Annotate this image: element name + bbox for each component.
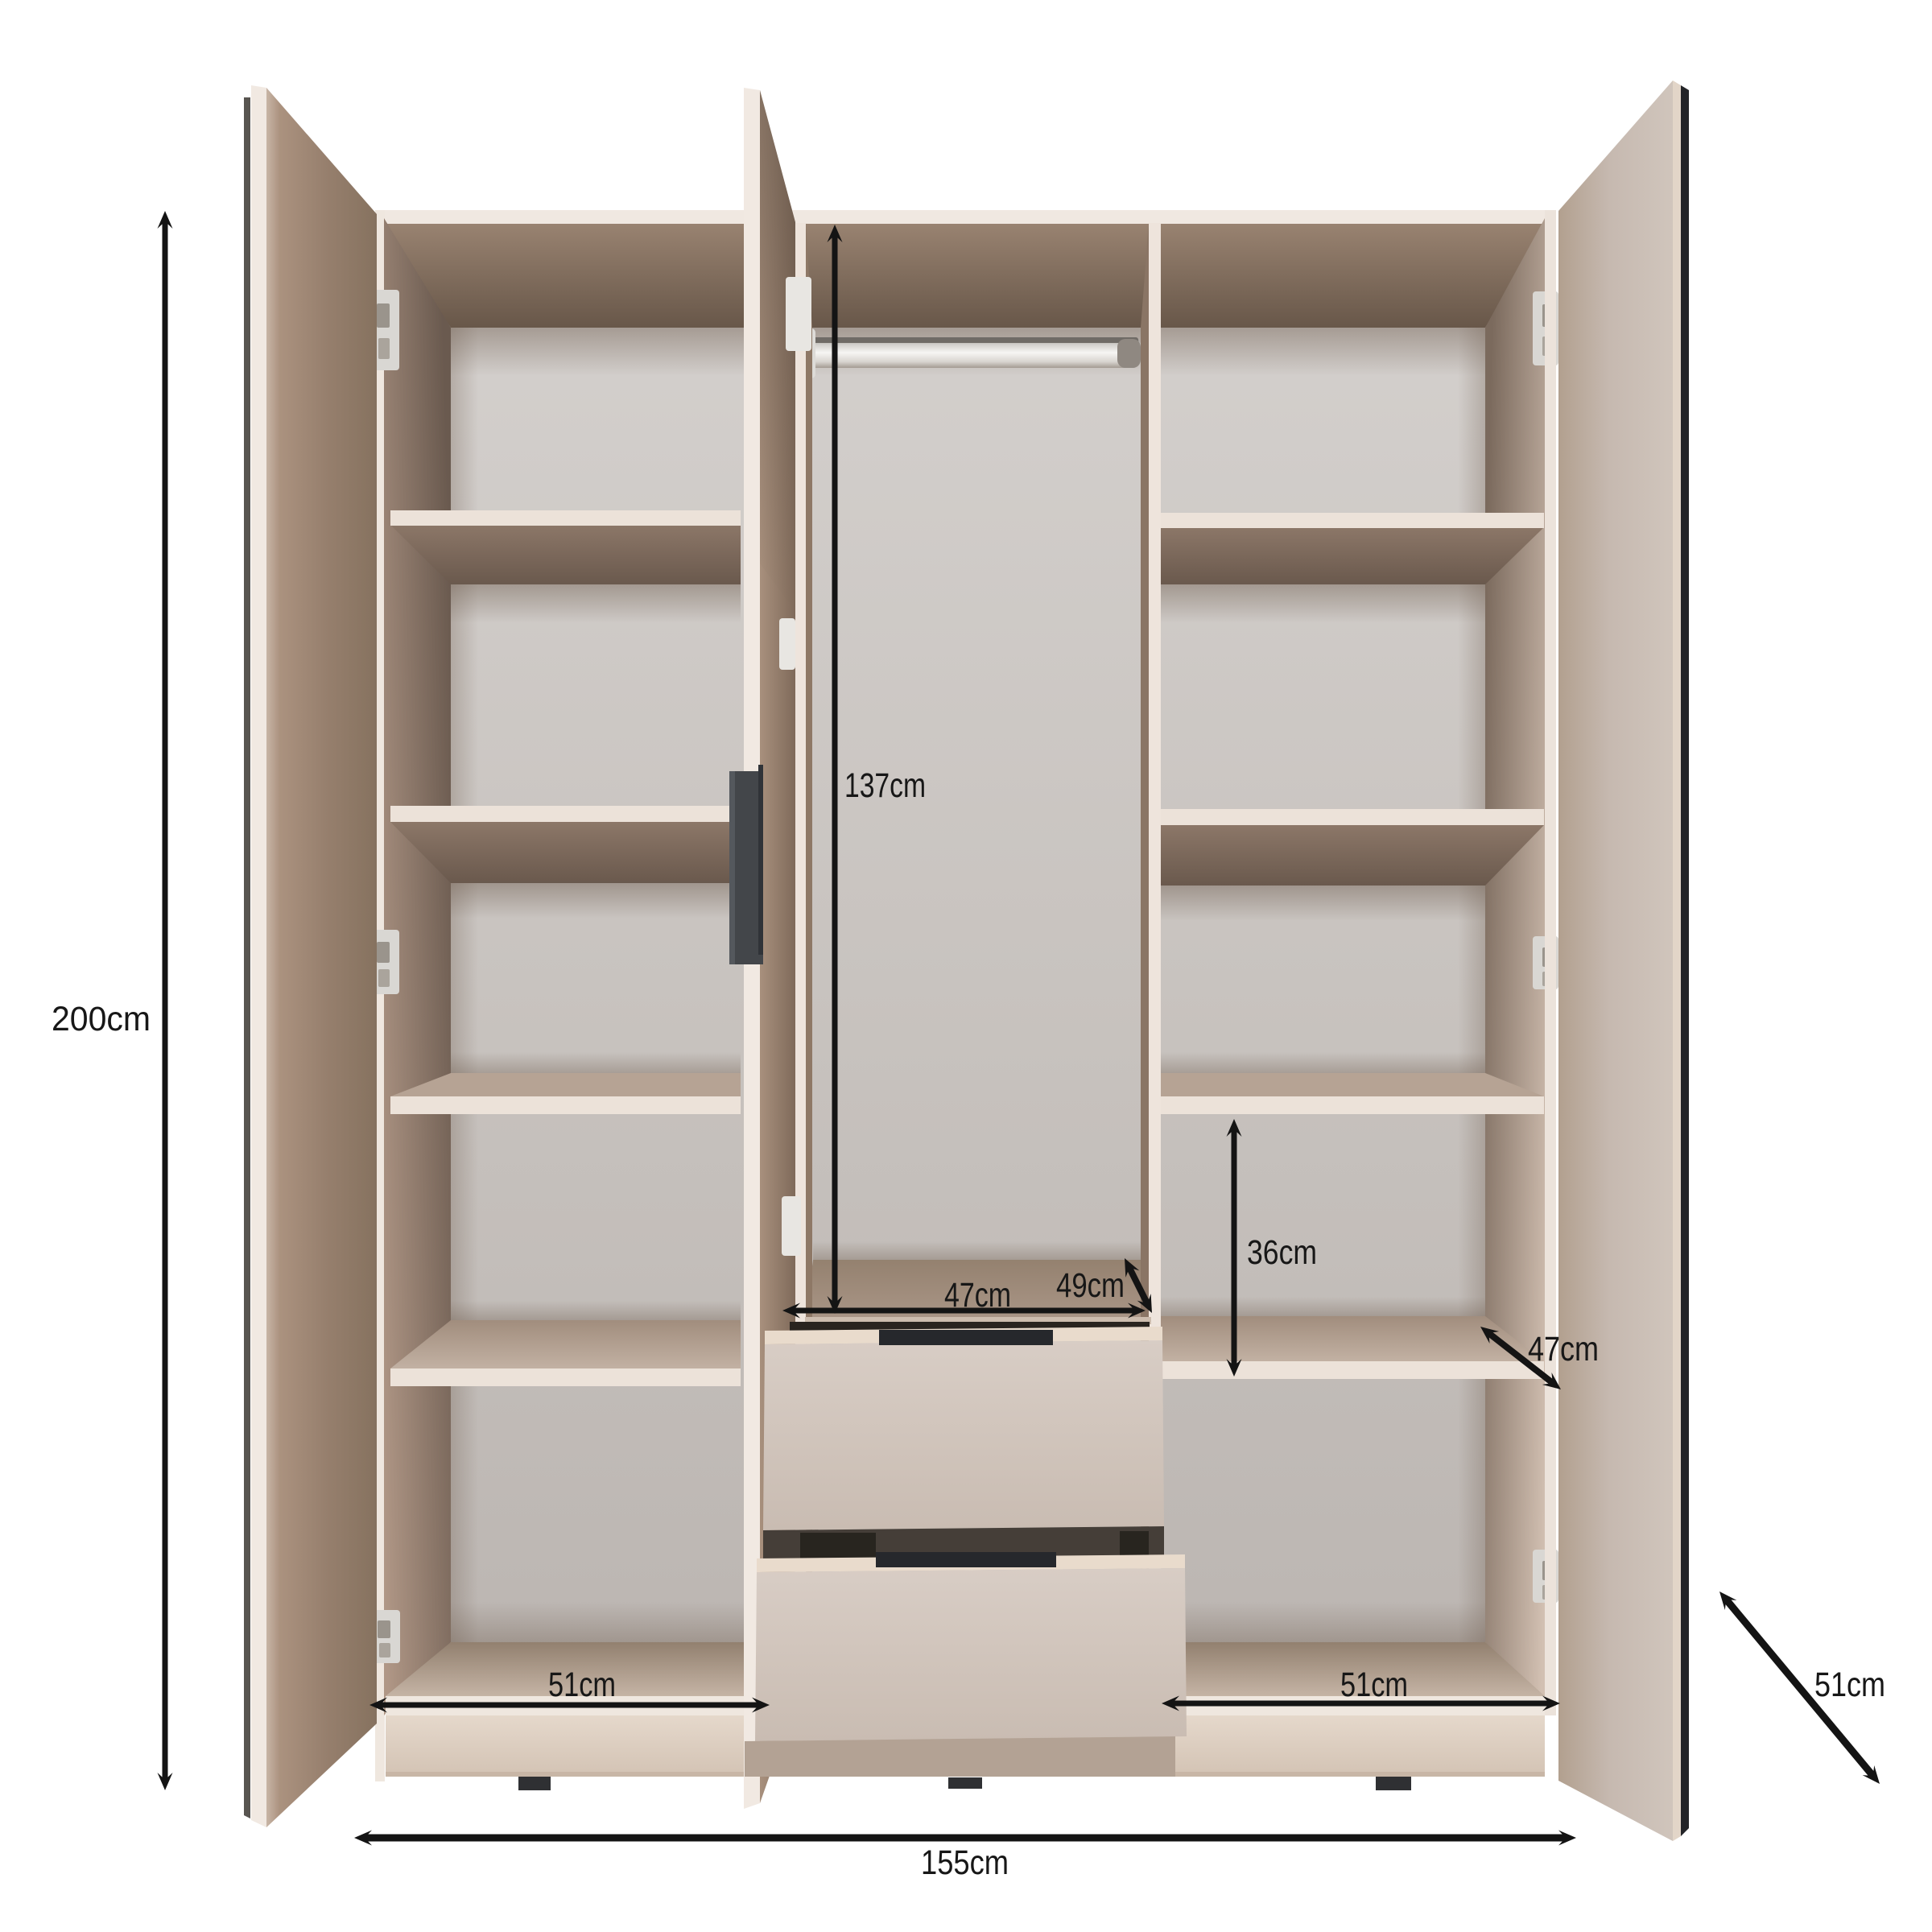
svg-text:200cm: 200cm — [52, 1000, 151, 1038]
svg-text:51cm: 51cm — [1814, 1666, 1885, 1704]
svg-text:155cm: 155cm — [921, 1843, 1009, 1882]
svg-text:51cm: 51cm — [548, 1666, 616, 1704]
svg-text:49cm: 49cm — [1056, 1266, 1125, 1305]
svg-text:47cm: 47cm — [944, 1276, 1011, 1315]
svg-text:36cm: 36cm — [1247, 1233, 1317, 1272]
svg-text:137cm: 137cm — [844, 766, 926, 805]
svg-text:47cm: 47cm — [1528, 1330, 1599, 1368]
svg-text:51cm: 51cm — [1340, 1666, 1408, 1704]
